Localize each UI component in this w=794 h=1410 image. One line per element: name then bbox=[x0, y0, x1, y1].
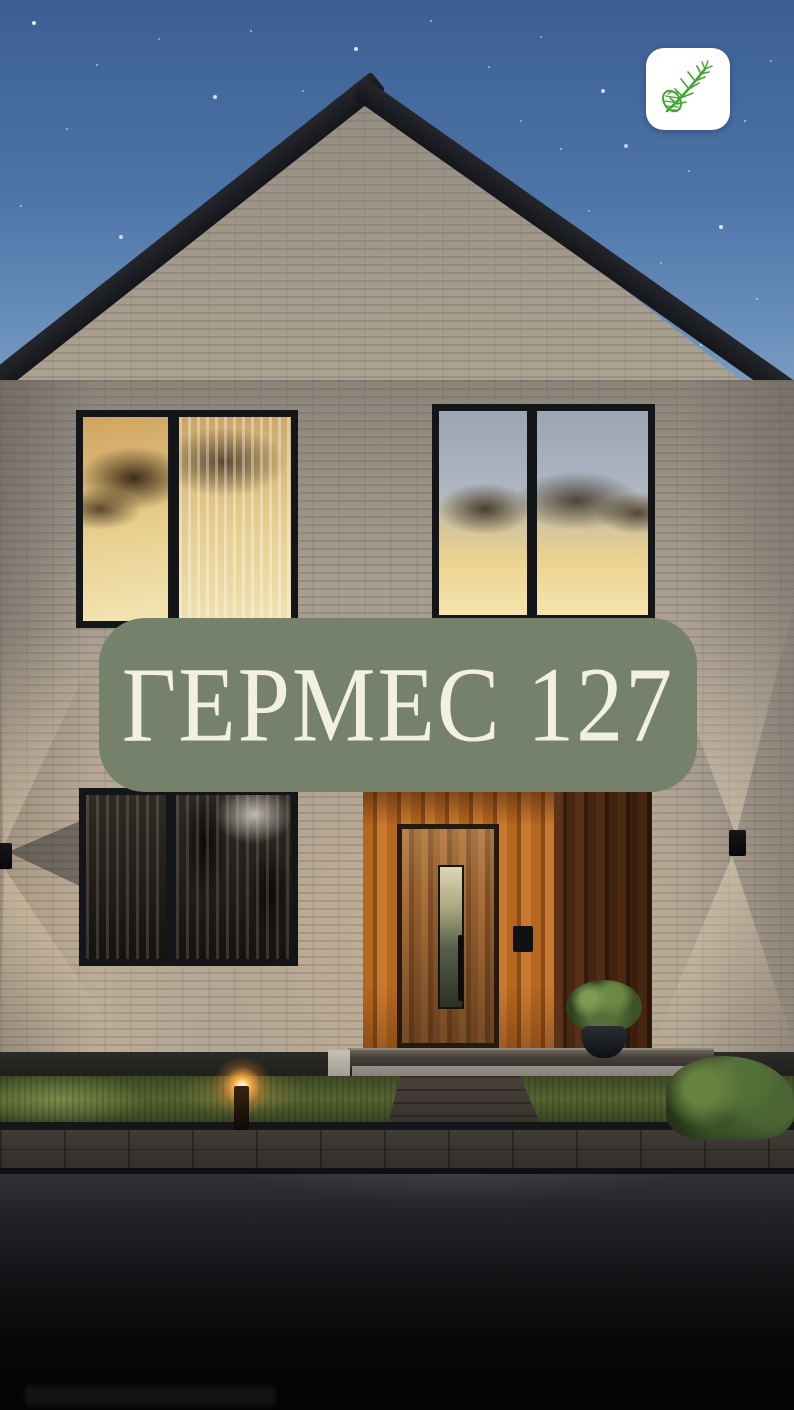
pine-branch-icon bbox=[655, 57, 721, 121]
path-light-bollard bbox=[234, 1086, 249, 1130]
window-upper-left bbox=[76, 410, 298, 628]
door-handle bbox=[458, 935, 463, 1001]
window-glass bbox=[439, 411, 648, 615]
window-mullion bbox=[169, 417, 179, 621]
window-pane-curtain bbox=[179, 417, 291, 621]
scene-house-render: ГЕРМЕС 127 bbox=[0, 0, 794, 1410]
window-lower-left bbox=[79, 788, 298, 966]
window-mullion bbox=[166, 795, 176, 959]
title-text: ГЕРМЕС 127 bbox=[122, 643, 674, 766]
logo-badge bbox=[646, 48, 730, 130]
front-door bbox=[397, 824, 499, 1048]
stars bbox=[0, 0, 2, 2]
title-badge: ГЕРМЕС 127 bbox=[99, 618, 697, 792]
window-mullion bbox=[527, 411, 537, 615]
window-pane bbox=[83, 417, 168, 621]
sidewalk bbox=[0, 1130, 794, 1170]
window-upper-right bbox=[432, 404, 655, 622]
road bbox=[0, 1174, 794, 1410]
doorbell-keypad bbox=[513, 926, 533, 952]
porch-slab bbox=[348, 1048, 714, 1068]
window-glass bbox=[86, 795, 291, 959]
wall-sconce-right bbox=[729, 830, 746, 856]
road-reflection bbox=[25, 1386, 275, 1406]
wall-sconce-left bbox=[0, 843, 12, 869]
